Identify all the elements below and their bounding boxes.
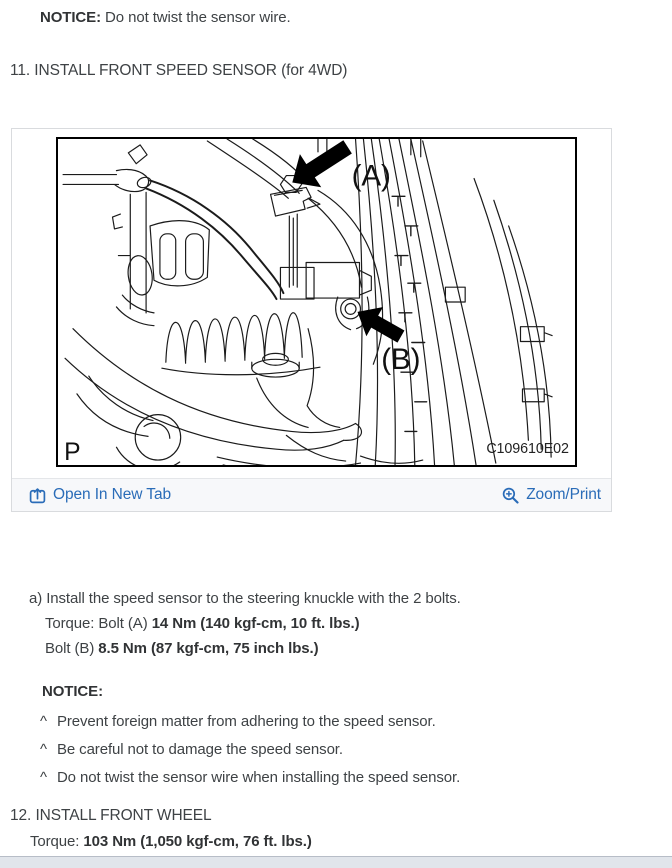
- figure-image-area: (A) (B) P C109610E02: [12, 129, 611, 478]
- notice-item: ^Prevent foreign matter from adhering to…: [40, 708, 672, 736]
- open-in-new-tab-icon: [29, 487, 46, 504]
- torque-a-prefix: Torque: Bolt (A): [45, 615, 152, 632]
- caret-bullet: ^: [40, 764, 47, 792]
- step-12-torque-line: Torque: 103 Nm (1,050 kgf-cm, 76 ft. lbs…: [30, 832, 672, 852]
- notice-label: NOTICE:: [40, 9, 101, 26]
- notice-list: ^Prevent foreign matter from adhering to…: [0, 708, 672, 792]
- torque-b-value: 8.5 Nm (87 kgf-cm, 75 inch lbs.): [98, 640, 318, 657]
- step-a-text: a) Install the speed sensor to the steer…: [29, 588, 672, 609]
- arrow-a: [292, 140, 352, 187]
- callout-b-label: (B): [381, 343, 420, 376]
- torque-12-prefix: Torque:: [30, 833, 83, 850]
- open-in-new-tab-link[interactable]: Open In New Tab: [29, 486, 171, 504]
- diagram-line-art: [63, 139, 552, 465]
- figure-card: (A) (B) P C109610E02 Open In New Tab: [11, 128, 612, 512]
- step-11-instructions: a) Install the speed sensor to the steer…: [0, 588, 672, 792]
- step-12-heading: 12. INSTALL FRONT WHEEL: [10, 806, 672, 826]
- caret-bullet: ^: [40, 708, 47, 736]
- notice-heading: NOTICE:: [42, 681, 672, 702]
- caret-bullet: ^: [40, 736, 47, 764]
- top-notice-line: NOTICE: Do not twist the sensor wire.: [40, 9, 672, 27]
- speed-sensor-diagram: (A) (B) P C109610E02: [58, 139, 575, 465]
- service-manual-page: NOTICE: Do not twist the sensor wire. 11…: [0, 9, 672, 852]
- notice-item-text: Do not twist the sensor wire when instal…: [57, 764, 460, 792]
- step-11-heading: 11. INSTALL FRONT SPEED SENSOR (for 4WD): [10, 61, 672, 80]
- notice-text: Do not twist the sensor wire.: [105, 9, 291, 26]
- horizontal-scrollbar[interactable]: [0, 856, 672, 868]
- diagram-frame: (A) (B) P C109610E02: [56, 137, 577, 467]
- zoom-print-link[interactable]: Zoom/Print: [502, 486, 601, 504]
- notice-item: ^Be careful not to damage the speed sens…: [40, 736, 672, 764]
- callout-a-label: (A): [352, 159, 391, 192]
- torque-b-prefix: Bolt (B): [45, 640, 98, 657]
- torque-a-line: Torque: Bolt (A) 14 Nm (140 kgf-cm, 10 f…: [45, 613, 672, 634]
- notice-item: ^Do not twist the sensor wire when insta…: [40, 764, 672, 792]
- plate-letter: P: [64, 439, 80, 465]
- notice-item-text: Be careful not to damage the speed senso…: [57, 736, 343, 764]
- open-in-new-tab-label: Open In New Tab: [53, 486, 171, 504]
- torque-12-value: 103 Nm (1,050 kgf-cm, 76 ft. lbs.): [83, 833, 311, 850]
- figure-code: C109610E02: [486, 441, 569, 457]
- notice-item-text: Prevent foreign matter from adhering to …: [57, 708, 436, 736]
- zoom-print-label: Zoom/Print: [526, 486, 601, 504]
- zoom-in-icon: [502, 487, 519, 504]
- torque-b-line: Bolt (B) 8.5 Nm (87 kgf-cm, 75 inch lbs.…: [45, 638, 672, 659]
- torque-a-value: 14 Nm (140 kgf-cm, 10 ft. lbs.): [152, 615, 360, 632]
- figure-toolbar: Open In New Tab Zoom/Print: [12, 478, 611, 511]
